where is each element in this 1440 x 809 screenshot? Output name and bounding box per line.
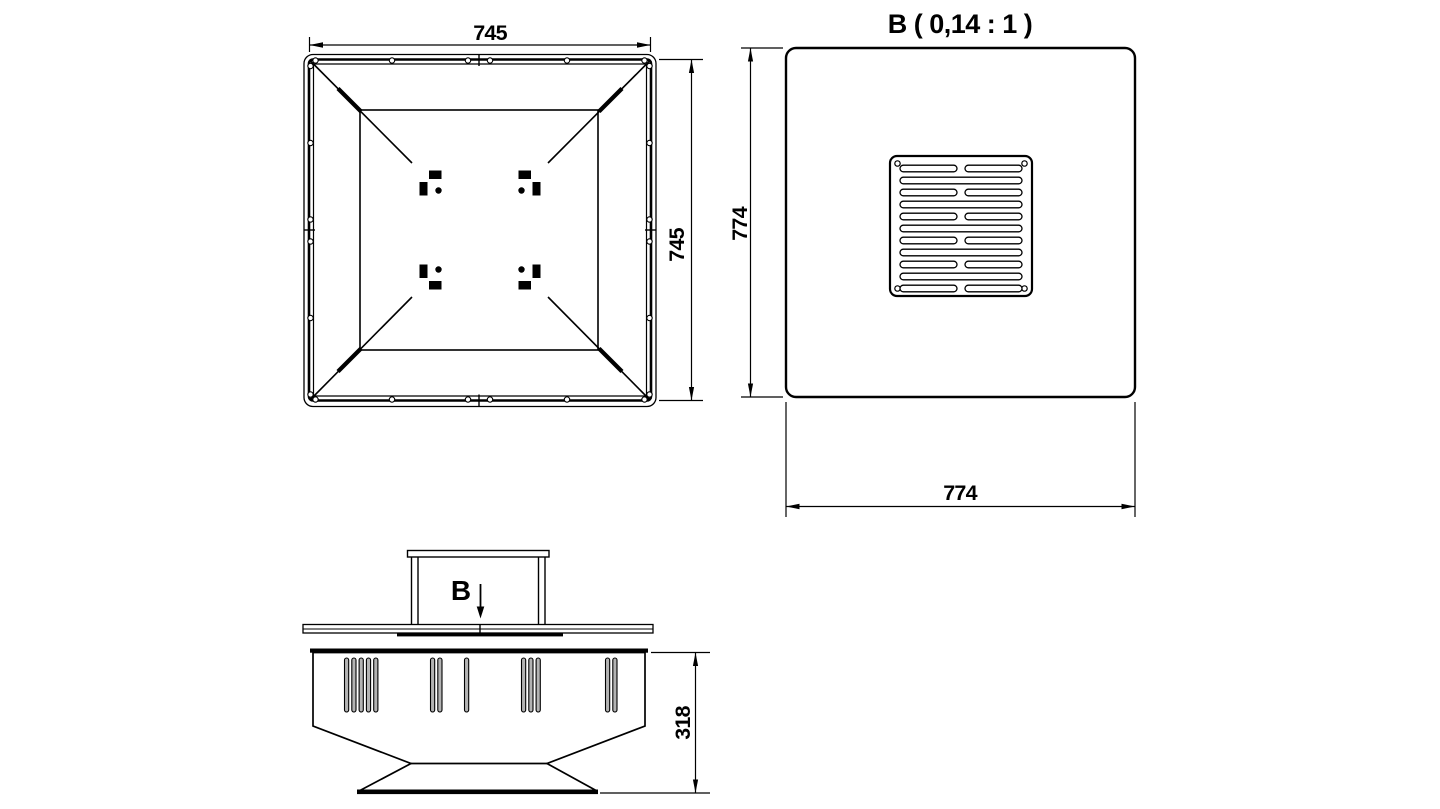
mount-dot [518, 187, 524, 193]
hood-top-edge [310, 649, 648, 653]
grille-slot [965, 165, 1022, 172]
grille-screw [1022, 161, 1027, 166]
technical-drawing-sheet: 745 745 B ( 0,14 : 1 ) [0, 0, 1440, 809]
mount-dot [518, 266, 524, 272]
grille-slot [900, 201, 1022, 208]
mount-pad [533, 182, 541, 196]
vent-slat [536, 658, 540, 712]
dim-value: 774 [943, 481, 977, 505]
mount-pad [519, 171, 532, 180]
vent-slat [374, 658, 378, 712]
grille-slot [965, 285, 1022, 292]
vent-slat [529, 658, 533, 712]
grille-slot [900, 285, 957, 292]
vent-slat [613, 658, 617, 712]
vent-slat [431, 658, 435, 712]
grille-screw [895, 161, 900, 166]
vent-slat [345, 658, 349, 712]
mount-pad [429, 281, 442, 290]
vent-slat [522, 658, 526, 712]
vent-slat [352, 658, 356, 712]
sheet-background [0, 0, 1440, 809]
rivet-hole [647, 63, 652, 68]
vent-slat [366, 658, 370, 712]
mount-dot [435, 187, 441, 193]
mount-pad [519, 281, 532, 290]
rivet-hole [642, 58, 647, 63]
grille-slot [900, 177, 1022, 184]
grille-slots [900, 165, 1022, 292]
rivet-hole [647, 217, 652, 222]
grille-slot [900, 261, 957, 268]
dim-value: 318 [671, 705, 695, 739]
rivet-hole [647, 140, 652, 145]
dim-value: 745 [473, 21, 507, 45]
vent-slat [438, 658, 442, 712]
detail-view-title: B ( 0,14 : 1 ) [888, 9, 1033, 39]
grille-slot [900, 225, 1022, 232]
collar-edge [397, 633, 563, 636]
rivet-hole [308, 217, 313, 222]
vent-slat [606, 658, 610, 712]
mount-pad [533, 265, 541, 279]
rivet-hole [308, 239, 313, 244]
grille-slot [900, 165, 957, 172]
rivet-hole [647, 315, 652, 320]
vent-slat [359, 658, 363, 712]
grille-slot [900, 237, 957, 244]
rivet-hole [308, 63, 313, 68]
rivet-hole [647, 392, 652, 397]
rivet-hole [564, 58, 569, 63]
grille-slot [965, 189, 1022, 196]
grille-slot [900, 273, 1022, 280]
rivet-hole [487, 58, 492, 63]
dim-value: 745 [665, 227, 689, 261]
rivet-hole [487, 397, 492, 402]
rivet-hole [313, 397, 318, 402]
hood-base-edge [357, 790, 598, 795]
rivet-hole [465, 397, 470, 402]
rivet-hole [647, 239, 652, 244]
rivet-hole [389, 58, 394, 63]
mount-pad [429, 171, 442, 180]
dim-value: 774 [728, 206, 752, 240]
grille-slot [965, 213, 1022, 220]
grille-slot [900, 189, 957, 196]
mount-pad [420, 265, 428, 279]
rivet-hole [465, 58, 470, 63]
grille-slot [900, 213, 957, 220]
rivet-hole [642, 397, 647, 402]
grille-slot [965, 237, 1022, 244]
rivet-hole [308, 140, 313, 145]
vent-slat [465, 658, 469, 712]
rivet-hole [313, 58, 318, 63]
section-label-b: B [451, 575, 471, 606]
rivet-hole [389, 397, 394, 402]
rivet-hole [308, 315, 313, 320]
vent-grille [890, 156, 1032, 296]
rivet-hole [308, 392, 313, 397]
top-view: 745 745 [304, 21, 703, 407]
rivet-hole [564, 397, 569, 402]
duct-cap [408, 551, 550, 558]
grille-slot [900, 249, 1022, 256]
duct-body [412, 557, 546, 625]
mount-pad [420, 182, 428, 196]
mount-dot [435, 266, 441, 272]
grille-slot [965, 261, 1022, 268]
